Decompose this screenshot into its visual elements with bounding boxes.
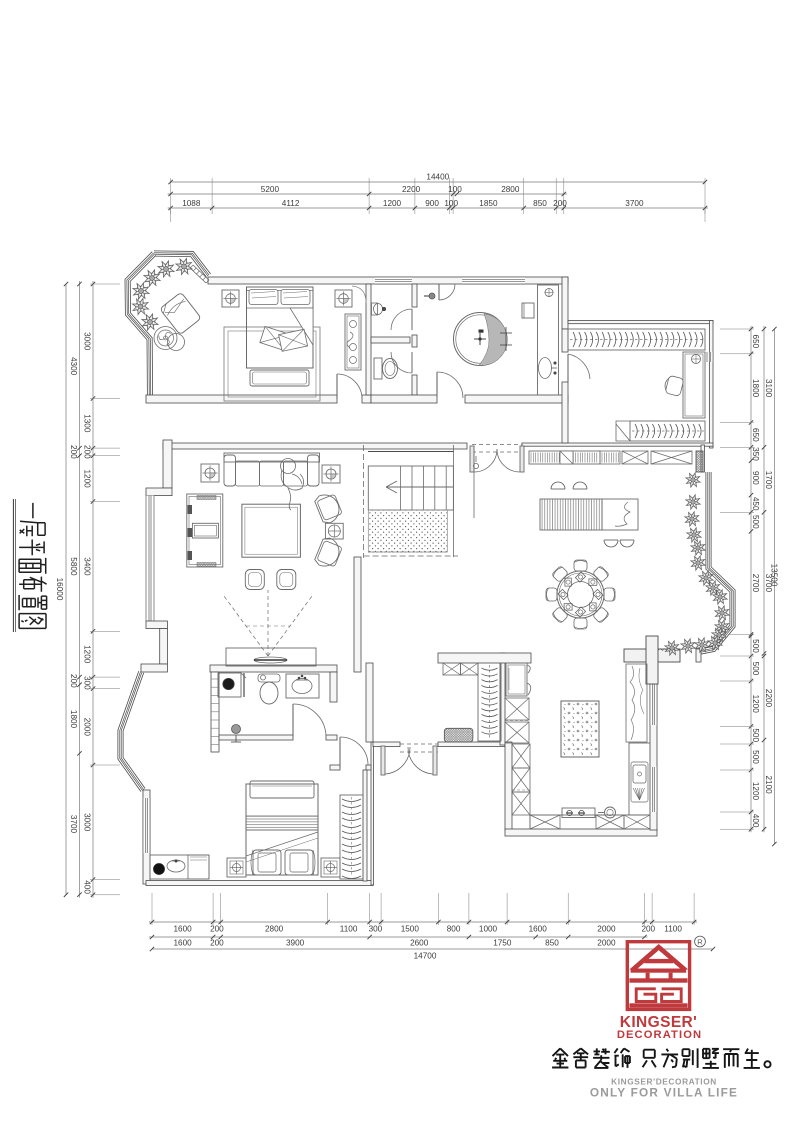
svg-text:350: 350 bbox=[751, 447, 760, 461]
svg-text:200: 200 bbox=[83, 445, 92, 459]
svg-text:ONLY FOR VILLA LIFE: ONLY FOR VILLA LIFE bbox=[590, 1086, 738, 1100]
svg-text:900: 900 bbox=[751, 471, 760, 485]
svg-text:2000: 2000 bbox=[597, 925, 616, 934]
svg-text:500: 500 bbox=[751, 515, 760, 529]
svg-text:4112: 4112 bbox=[282, 199, 300, 208]
svg-text:2600: 2600 bbox=[410, 939, 429, 948]
svg-text:500: 500 bbox=[751, 662, 760, 676]
svg-text:1600: 1600 bbox=[529, 925, 548, 934]
svg-text:1200: 1200 bbox=[83, 645, 92, 664]
svg-text:1500: 1500 bbox=[401, 925, 420, 934]
svg-text:4300: 4300 bbox=[69, 357, 78, 376]
svg-text:100: 100 bbox=[448, 185, 462, 194]
svg-text:300: 300 bbox=[83, 676, 92, 690]
svg-text:800: 800 bbox=[447, 925, 461, 934]
svg-text:1200: 1200 bbox=[383, 199, 402, 208]
svg-text:200: 200 bbox=[553, 199, 567, 208]
svg-text:200: 200 bbox=[69, 445, 78, 459]
svg-text:1100: 1100 bbox=[340, 925, 358, 934]
svg-text:850: 850 bbox=[545, 939, 559, 948]
svg-text:650: 650 bbox=[751, 335, 760, 349]
svg-text:1600: 1600 bbox=[173, 925, 192, 934]
svg-text:3700: 3700 bbox=[69, 815, 78, 834]
svg-text:2100: 2100 bbox=[764, 775, 773, 794]
svg-text:1200: 1200 bbox=[751, 695, 760, 714]
svg-text:900: 900 bbox=[425, 199, 439, 208]
svg-text:3700: 3700 bbox=[625, 199, 644, 208]
svg-text:2200: 2200 bbox=[764, 689, 773, 708]
svg-text:1200: 1200 bbox=[83, 469, 92, 488]
svg-text:2000: 2000 bbox=[83, 718, 92, 737]
svg-text:450: 450 bbox=[751, 497, 760, 511]
svg-text:3100: 3100 bbox=[764, 379, 773, 398]
svg-text:1800: 1800 bbox=[751, 379, 760, 398]
svg-text:1200: 1200 bbox=[751, 782, 760, 801]
svg-text:400: 400 bbox=[83, 880, 92, 894]
svg-text:400: 400 bbox=[751, 814, 760, 828]
svg-text:300: 300 bbox=[369, 925, 383, 934]
svg-text:2800: 2800 bbox=[265, 925, 284, 934]
svg-text:1800: 1800 bbox=[69, 710, 78, 729]
svg-text:650: 650 bbox=[751, 428, 760, 442]
svg-text:1000: 1000 bbox=[479, 925, 498, 934]
svg-text:DECORATION: DECORATION bbox=[617, 1029, 702, 1041]
svg-text:3000: 3000 bbox=[83, 813, 92, 832]
svg-text:500: 500 bbox=[751, 750, 760, 764]
svg-text:16000: 16000 bbox=[55, 578, 64, 601]
svg-text:2700: 2700 bbox=[751, 574, 760, 593]
svg-text:1850: 1850 bbox=[479, 199, 498, 208]
svg-text:200: 200 bbox=[69, 674, 78, 688]
svg-text:2200: 2200 bbox=[402, 185, 421, 194]
svg-text:1088: 1088 bbox=[182, 199, 201, 208]
svg-text:200: 200 bbox=[641, 925, 655, 934]
svg-text:3900: 3900 bbox=[286, 939, 305, 948]
svg-text:200: 200 bbox=[210, 925, 224, 934]
svg-text:3400: 3400 bbox=[83, 557, 92, 576]
svg-text:1750: 1750 bbox=[493, 939, 512, 948]
svg-text:14700: 14700 bbox=[414, 952, 437, 961]
svg-text:13500: 13500 bbox=[770, 564, 779, 587]
svg-text:2000: 2000 bbox=[597, 939, 616, 948]
svg-text:1600: 1600 bbox=[173, 939, 192, 948]
svg-text:1300: 1300 bbox=[83, 414, 92, 433]
svg-text:850: 850 bbox=[533, 199, 547, 208]
svg-text:5800: 5800 bbox=[69, 557, 78, 576]
svg-text:R: R bbox=[697, 938, 703, 947]
svg-text:500: 500 bbox=[751, 639, 760, 653]
svg-text:2800: 2800 bbox=[501, 185, 520, 194]
svg-text:14400: 14400 bbox=[426, 173, 449, 182]
svg-text:100: 100 bbox=[444, 199, 458, 208]
svg-text:1700: 1700 bbox=[764, 471, 773, 490]
svg-text:3000: 3000 bbox=[83, 332, 92, 351]
svg-text:5200: 5200 bbox=[261, 185, 280, 194]
svg-text:200: 200 bbox=[210, 939, 224, 948]
svg-text:1100: 1100 bbox=[664, 925, 682, 934]
svg-text:500: 500 bbox=[751, 728, 760, 742]
